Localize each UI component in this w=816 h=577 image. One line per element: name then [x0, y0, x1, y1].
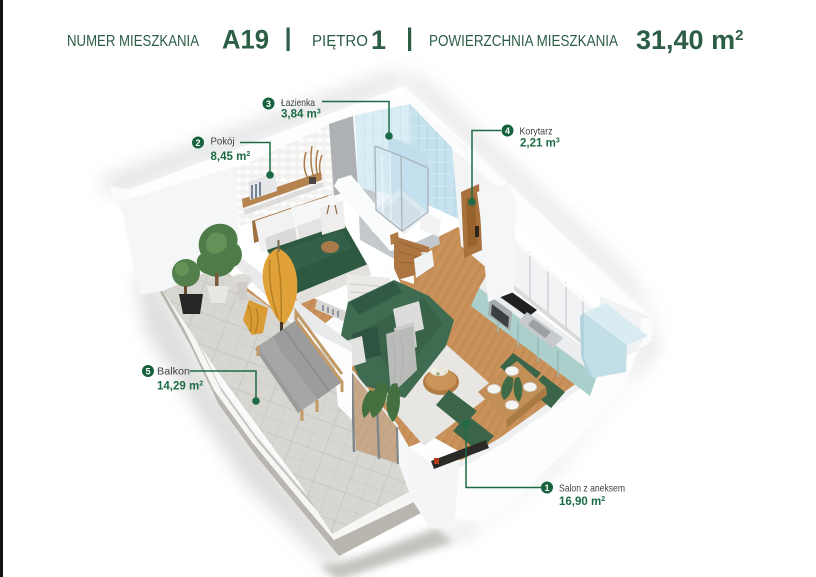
svg-text:31,40 m2: 31,40 m2 [636, 25, 743, 55]
svg-text:Balkon: Balkon [157, 366, 190, 378]
svg-text:2,21 m3: 2,21 m3 [520, 138, 560, 150]
svg-text:PIĘTRO: PIĘTRO [312, 33, 368, 50]
svg-text:5: 5 [145, 366, 150, 376]
svg-text:NUMER MIESZKANIA: NUMER MIESZKANIA [67, 33, 199, 50]
svg-text:3,84 m3: 3,84 m3 [281, 109, 321, 121]
svg-text:3: 3 [266, 99, 271, 109]
svg-text:A19: A19 [222, 25, 269, 55]
svg-text:Pokój: Pokój [211, 136, 235, 148]
svg-text:14,29 m2: 14,29 m2 [157, 381, 203, 393]
svg-text:Łazienka: Łazienka [281, 97, 315, 109]
svg-text:2: 2 [195, 138, 200, 148]
svg-text:4: 4 [505, 126, 510, 136]
svg-text:Salon z aneksem: Salon z aneksem [559, 483, 625, 495]
svg-text:1: 1 [544, 483, 549, 493]
svg-text:1: 1 [371, 25, 386, 55]
svg-text:16,90 m2: 16,90 m2 [559, 496, 605, 508]
svg-text:Korytarz: Korytarz [520, 126, 553, 138]
svg-text:8,45 m2: 8,45 m2 [211, 151, 251, 163]
svg-text:POWIERZCHNIA MIESZKANIA: POWIERZCHNIA MIESZKANIA [429, 33, 618, 50]
